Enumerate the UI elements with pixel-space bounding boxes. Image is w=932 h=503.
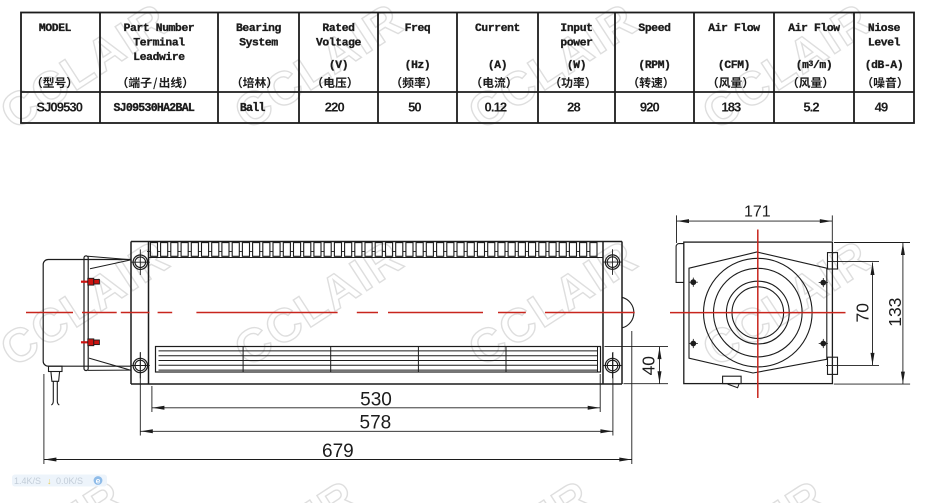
svg-text:SJ09530: SJ09530 xyxy=(36,99,82,114)
svg-text:679: 679 xyxy=(322,441,354,462)
svg-text:133: 133 xyxy=(885,298,905,327)
svg-text:Voltage: Voltage xyxy=(316,38,362,50)
svg-text:Niose: Niose xyxy=(868,23,901,35)
svg-text:(RPM): (RPM) xyxy=(638,60,670,72)
svg-text:920: 920 xyxy=(640,99,660,114)
svg-text:40: 40 xyxy=(639,356,659,376)
svg-text:Level: Level xyxy=(868,38,901,50)
svg-text:(Hz): (Hz) xyxy=(405,60,431,72)
svg-text:Freq: Freq xyxy=(405,23,431,35)
svg-text:(CFM): (CFM) xyxy=(718,60,750,72)
svg-text:System: System xyxy=(239,38,278,50)
svg-text:Bearing: Bearing xyxy=(236,23,282,35)
svg-text:(A): (A) xyxy=(488,60,507,72)
svg-text:530: 530 xyxy=(360,389,392,410)
svg-text:Ball: Ball xyxy=(240,102,266,115)
svg-text:Current: Current xyxy=(475,23,520,35)
svg-text:Leadwire: Leadwire xyxy=(133,52,185,64)
svg-text:578: 578 xyxy=(360,413,392,434)
svg-text:Air Flow: Air Flow xyxy=(708,23,760,35)
svg-text:183: 183 xyxy=(721,99,741,114)
svg-text:1.4K/S: 1.4K/S xyxy=(14,476,41,486)
svg-text:28: 28 xyxy=(567,99,580,114)
svg-text:70: 70 xyxy=(852,303,872,323)
svg-text:↓: ↓ xyxy=(47,476,52,486)
svg-text:Speed: Speed xyxy=(638,23,670,35)
svg-text:0.12: 0.12 xyxy=(485,99,507,114)
svg-text:(dB-A): (dB-A) xyxy=(865,60,904,72)
svg-text:MODEL: MODEL xyxy=(39,23,72,35)
svg-text:171: 171 xyxy=(744,204,771,221)
svg-text:(V): (V) xyxy=(329,60,348,72)
svg-text:e: e xyxy=(96,476,101,486)
svg-text:(m3/m): (m3/m) xyxy=(796,60,833,72)
svg-text:5.2: 5.2 xyxy=(803,99,819,114)
svg-text:power: power xyxy=(560,38,592,50)
svg-text:SJ09530HA2BAL: SJ09530HA2BAL xyxy=(113,102,194,115)
svg-text:220: 220 xyxy=(325,99,345,114)
svg-text:(W): (W) xyxy=(567,60,586,72)
svg-text:Terminal: Terminal xyxy=(133,38,185,50)
svg-text:Rated: Rated xyxy=(322,23,354,35)
svg-text:Part Number: Part Number xyxy=(124,23,195,35)
svg-text:0.0K/S: 0.0K/S xyxy=(56,476,83,486)
svg-text:Air Flow: Air Flow xyxy=(788,23,840,35)
svg-text:Input: Input xyxy=(560,23,592,35)
svg-text:49: 49 xyxy=(875,99,888,114)
svg-text:50: 50 xyxy=(408,99,421,114)
